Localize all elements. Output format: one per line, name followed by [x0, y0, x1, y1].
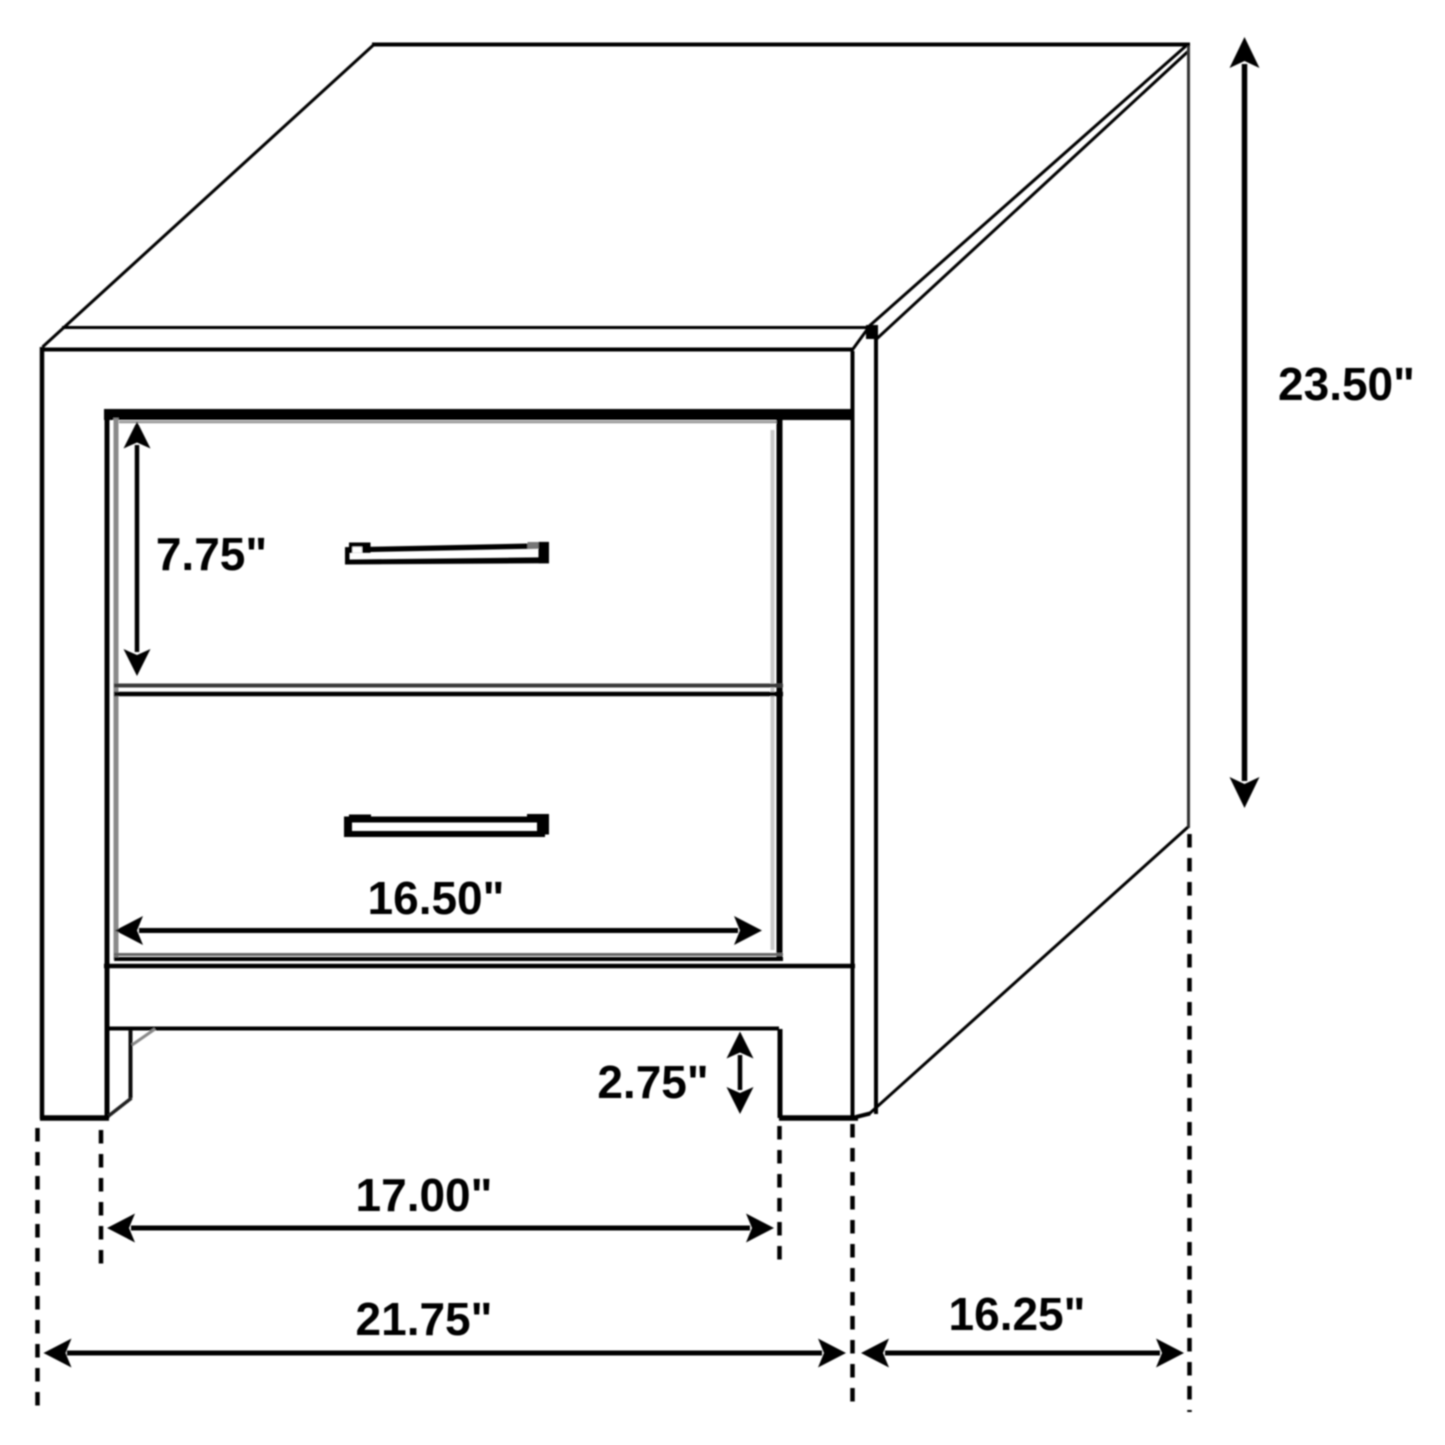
svg-text:2.75": 2.75": [597, 1056, 708, 1108]
svg-text:21.75": 21.75": [356, 1293, 493, 1345]
svg-text:16.50": 16.50": [368, 872, 505, 924]
svg-text:23.50": 23.50": [1278, 358, 1415, 410]
svg-text:16.25": 16.25": [949, 1288, 1086, 1340]
svg-text:7.75": 7.75": [156, 528, 267, 580]
svg-text:17.00": 17.00": [356, 1169, 493, 1221]
